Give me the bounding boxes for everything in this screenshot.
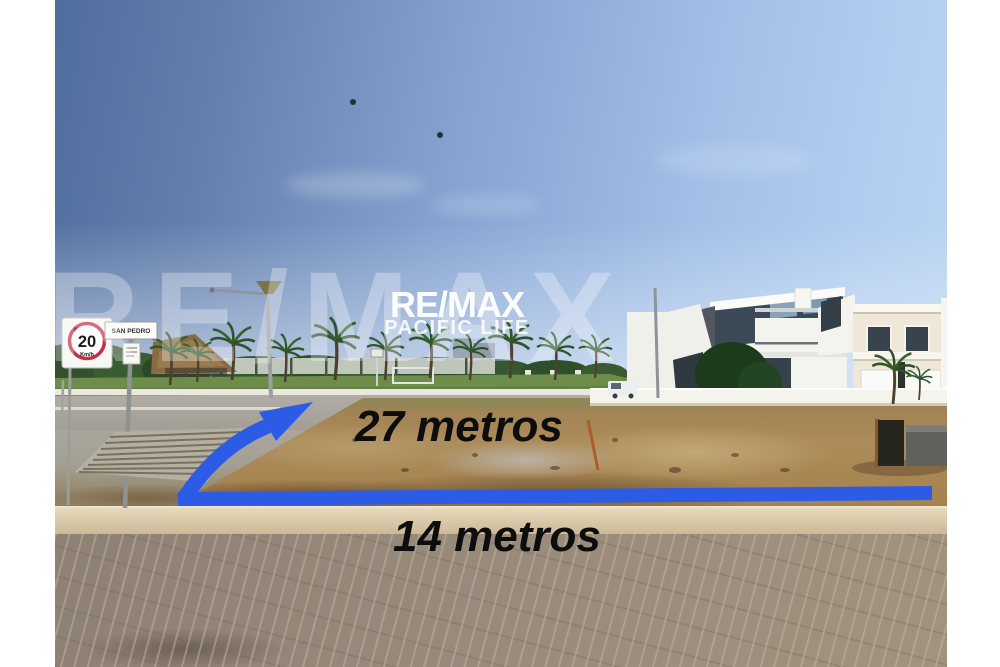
screenshot-root: 20 Km/h SAN PEDRO [0, 0, 1000, 667]
utility-box [852, 419, 947, 476]
side-measurement-label: 27 metros [355, 405, 563, 449]
speed-limit-value: 20 [78, 333, 96, 351]
roof-tower [795, 288, 811, 310]
upper-window [867, 326, 891, 352]
birds [350, 99, 443, 138]
speed-limit-sign: 20 Km/h [61, 318, 112, 505]
bird-icon [437, 132, 443, 138]
canvas-margin-left [0, 0, 55, 667]
lamp-arm [213, 290, 268, 294]
small-sign [123, 343, 140, 364]
scene-graphics: 20 Km/h SAN PEDRO [55, 0, 947, 667]
property-photo: 20 Km/h SAN PEDRO [55, 0, 947, 667]
basketball-backboard [371, 349, 383, 357]
white-truck [608, 381, 638, 399]
street-name-text: SAN PEDRO [112, 328, 151, 335]
clouds [285, 145, 815, 215]
speed-limit-unit: Km/h [80, 352, 94, 358]
bird-icon [350, 99, 356, 105]
front-measurement-label: 14 metros [393, 515, 601, 559]
survey-stake [588, 420, 598, 470]
lamp-cup-icon [256, 281, 282, 294]
sign-post [68, 368, 70, 505]
upper-window [905, 326, 929, 352]
canvas-margin-right [947, 0, 1000, 667]
front-measure-line [178, 486, 932, 506]
